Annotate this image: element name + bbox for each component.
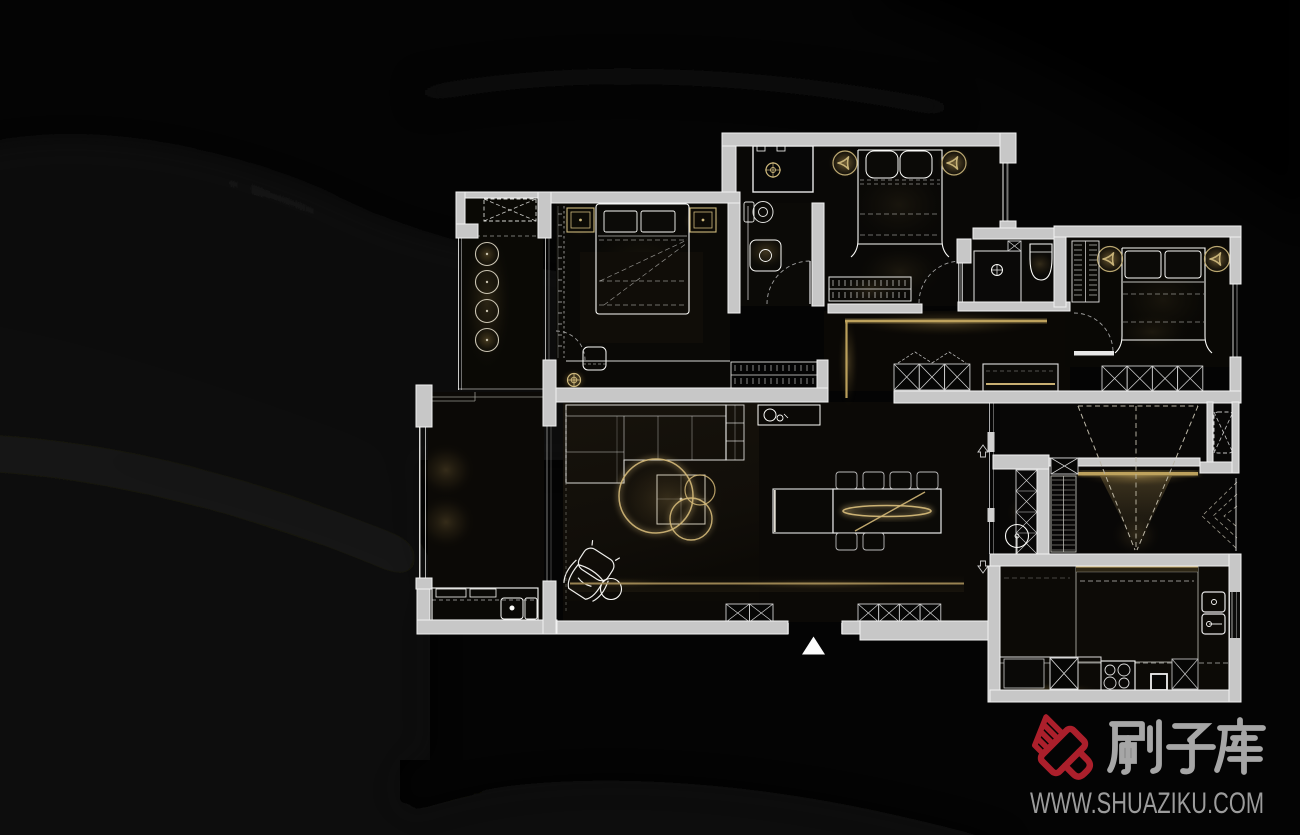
svg-text:WWW.SHUAZIKU.COM: WWW.SHUAZIKU.COM: [1030, 787, 1264, 820]
